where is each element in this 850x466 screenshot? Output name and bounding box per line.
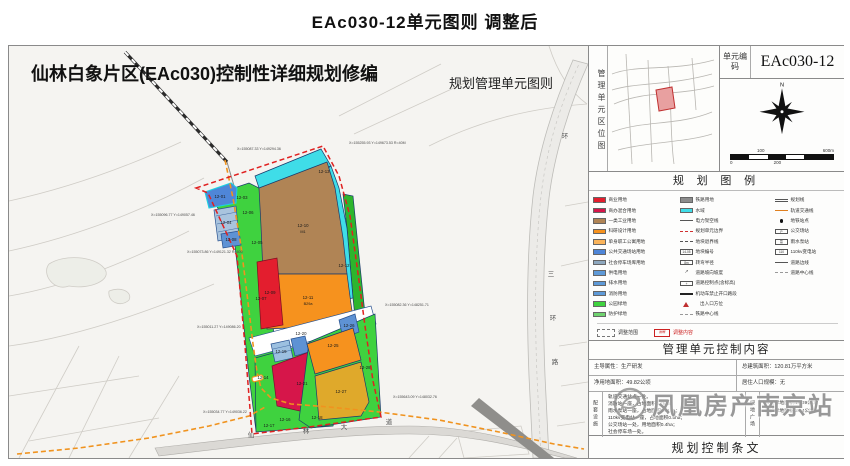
svg-text:12-01: 12-01 xyxy=(215,194,227,199)
svg-text:M1: M1 xyxy=(300,230,305,234)
svg-text:X=155643.09 Y=148032.76: X=155643.09 Y=148032.76 xyxy=(393,395,437,399)
svg-text:12-09: 12-09 xyxy=(265,290,277,295)
legend-column-landuse: 商业用地 商办混合用地 一类工业用地 科研设计用地 单身职工公寓用地 公共交通场… xyxy=(593,195,677,320)
svg-text:12-17: 12-17 xyxy=(264,423,276,428)
legend-item: 道路中心线 xyxy=(775,268,841,278)
adjust-scope-icon xyxy=(597,329,615,337)
legend-item: 商业用地 xyxy=(593,195,677,205)
swatch-commercial xyxy=(593,197,606,203)
parcel-number-icon: 14-05 xyxy=(680,249,693,255)
svg-text:12-12: 12-12 xyxy=(339,263,351,268)
scale-label-0: 0 xyxy=(730,160,733,165)
swatch-mixed xyxy=(593,208,606,214)
scale-label-200: 200 xyxy=(774,160,782,165)
legend-item: 社会停车场库用地 xyxy=(593,257,677,267)
svg-text:12-25: 12-25 xyxy=(328,343,340,348)
watermark-text: 凤凰房产南京站 xyxy=(652,386,834,421)
page-title: EAc030-12单元图则 调整后 xyxy=(0,8,850,33)
swatch-drainage xyxy=(593,281,606,287)
swatch-industrial xyxy=(593,218,606,224)
legend-item: ↗道路坡向坡度 xyxy=(680,268,772,278)
legend-item: 单身职工公寓用地 xyxy=(593,237,677,247)
svg-text:林: 林 xyxy=(303,426,310,435)
bus-depot-icon: P xyxy=(775,229,788,235)
legend-section: 规 划 图 例 商业用地 商办混合用地 一类工业用地 科研设计用地 单身职工公寓… xyxy=(589,172,844,341)
legend-item: 排水用地 xyxy=(593,278,677,288)
swatch-railway xyxy=(680,197,693,203)
legend-item: 消防用地 xyxy=(593,289,677,299)
compass-area: N 100 600m xyxy=(720,79,844,171)
setback-line-icon xyxy=(680,241,693,242)
legend-item: 规划线 xyxy=(775,195,841,205)
slope-arrow-icon: ↗ xyxy=(680,270,693,276)
legend-item: 防护绿地 xyxy=(593,309,677,319)
svg-text:X=155087.33 Y=149294.36: X=155087.33 Y=149294.36 xyxy=(237,147,281,151)
svg-text:12-05: 12-05 xyxy=(252,240,264,245)
no-access-segment-icon xyxy=(680,293,693,295)
svg-text:12-08: 12-08 xyxy=(226,237,238,242)
svg-text:12-03: 12-03 xyxy=(237,195,249,200)
legend-item: 泵雨水泵站 xyxy=(775,237,841,247)
svg-text:12-13: 12-13 xyxy=(319,169,331,174)
scale-bar: 100 600m 0 200 xyxy=(730,148,834,168)
svg-text:路: 路 xyxy=(552,357,559,366)
svg-text:12-18: 12-18 xyxy=(312,415,324,420)
panel-top-row: 管理单元区位图 xyxy=(589,46,844,172)
location-map-label: 管理单元区位图 xyxy=(589,46,608,171)
swatch-buffer-green xyxy=(593,312,606,318)
svg-text:X=155096.77 Y=149057.46: X=155096.77 Y=149057.46 xyxy=(151,213,195,217)
svg-text:12-19: 12-19 xyxy=(276,349,288,354)
minimap-highlight-parcel xyxy=(656,87,675,111)
unit-code-row: 单元编码 EAc030-12 xyxy=(720,46,844,79)
watermark: 凤凰房产南京站 xyxy=(613,386,834,421)
svg-text:B29a: B29a xyxy=(304,302,314,306)
dominant-attribute: 主导属性：生产研发 xyxy=(589,360,737,375)
rail-centerline-icon xyxy=(680,314,693,315)
swatch-transit xyxy=(593,249,606,255)
legend-item: 科研设计用地 xyxy=(593,226,677,236)
legend-item: 公共交通场站用地 xyxy=(593,247,677,257)
location-minimap xyxy=(608,46,719,171)
facilities-label: 配套设施 xyxy=(589,392,603,437)
plan-map: 12-01 12-03 12-04 12-05 12-06 12-07 12-0… xyxy=(9,46,588,458)
svg-text:12-20: 12-20 xyxy=(296,331,308,336)
legend-adjust-row: 调整范围 图框调整内容 xyxy=(597,323,838,340)
entrance-direction-icon xyxy=(683,302,689,307)
legend-item: P公交场站 xyxy=(775,226,841,236)
legend-item: 供电用地 xyxy=(593,268,677,278)
sheet-title: 仙林白象片区(EAc030)控制性详细规划修编 xyxy=(31,60,378,86)
scale-label-100: 100 xyxy=(757,148,765,153)
legend-title: 规 划 图 例 xyxy=(589,172,844,191)
legend-item: 铁路用地 xyxy=(680,195,772,205)
swatch-parking xyxy=(593,260,606,266)
svg-text:12-16: 12-16 xyxy=(280,417,292,422)
pump-station-icon: 泵 xyxy=(775,239,788,245)
swatch-fire xyxy=(593,291,606,297)
swatch-dorm xyxy=(593,239,606,245)
svg-text:12-28: 12-28 xyxy=(360,365,372,370)
legend-item: 地块退界线 xyxy=(680,237,772,247)
svg-text:仙: 仙 xyxy=(248,430,255,439)
unit-code-label: 单元编码 xyxy=(720,46,751,78)
legend-item: +道路控制点(含标高) xyxy=(680,278,772,288)
svg-text:X=155082.36 Y=148251.71: X=155082.36 Y=148251.71 xyxy=(385,303,429,307)
legend-item: 110110kv变电站 xyxy=(775,247,841,257)
scale-label-600m: 600m xyxy=(823,148,834,153)
legend-item: 商办混合用地 xyxy=(593,205,677,215)
svg-text:环: 环 xyxy=(562,132,569,140)
unit-location-section: 管理单元区位图 xyxy=(589,46,720,171)
svg-text:12-14: 12-14 xyxy=(258,375,270,380)
planning-terms-title: 规划控制条文 xyxy=(589,436,844,458)
legend-item: 公园绿地 xyxy=(593,299,677,309)
svg-text:X=155011.27 Y=149086.20: X=155011.27 Y=149086.20 xyxy=(197,325,241,329)
legend-item: 铁路中心线 xyxy=(680,309,772,319)
svg-text:12-07: 12-07 xyxy=(256,296,268,301)
svg-text:大: 大 xyxy=(341,422,348,431)
svg-text:12-11: 12-11 xyxy=(303,295,314,300)
legend-item: 电力架空线 xyxy=(680,216,772,226)
svg-text:X=155255.93 Y=149673.53 R=40M: X=155255.93 Y=149673.53 R=40M xyxy=(349,141,406,145)
swatch-power xyxy=(593,270,606,276)
svg-text:道: 道 xyxy=(386,417,393,426)
legend-item: 地铁站点 xyxy=(775,216,841,226)
road-edge-icon xyxy=(775,262,788,263)
road-centerline-icon xyxy=(775,272,788,273)
legend-item: 一类工业用地 xyxy=(593,216,677,226)
legend-item: 道路边线 xyxy=(775,257,841,267)
phoenix-logo-icon xyxy=(613,387,647,421)
swatch-water xyxy=(680,208,693,214)
svg-text:12-10: 12-10 xyxy=(298,223,310,228)
compass-rose-icon: N xyxy=(749,80,815,138)
total-floor-area: 总建筑面积：120.81万平方米 xyxy=(737,360,844,375)
metro-station-legend-icon xyxy=(775,218,788,224)
svg-text:环: 环 xyxy=(550,314,557,322)
adjust-content-icon: 图框 xyxy=(654,329,670,337)
svg-text:三: 三 xyxy=(548,270,555,278)
legend-item: 14-05地块编号 xyxy=(680,247,772,257)
legend-column-lines: 铁路用地 水域 电力架空线 规划单元边界 地块退界线 14-05地块编号 8m转… xyxy=(680,195,772,320)
metro-line-icon xyxy=(775,210,788,211)
legend-column-symbols: 规划线 轨道交通线 地铁站点 P公交场站 泵雨水泵站 110110kv变电站 道… xyxy=(775,195,841,320)
swatch-park-green xyxy=(593,301,606,307)
svg-text:12-04: 12-04 xyxy=(221,220,233,225)
svg-text:12-26: 12-26 xyxy=(344,323,356,328)
legend-item: 机动车禁止开口路段 xyxy=(680,289,772,299)
legend-item: 水域 xyxy=(680,205,772,215)
control-content-title: 管理单元控制内容 xyxy=(589,341,844,360)
powerline-icon xyxy=(680,220,693,221)
unit-boundary-icon xyxy=(680,231,693,232)
legend-item: 出入口方位 xyxy=(680,299,772,309)
svg-text:12-21: 12-21 xyxy=(297,381,309,386)
svg-text:X=155034.77 Y=149036.22: X=155034.77 Y=149036.22 xyxy=(203,410,247,414)
svg-text:12-27: 12-27 xyxy=(336,389,348,394)
unit-code-value: EAc030-12 xyxy=(751,46,844,78)
substation-icon: 110 xyxy=(775,249,788,255)
legend-item: 轨道交通线 xyxy=(775,205,841,215)
svg-text:12-06: 12-06 xyxy=(243,210,255,215)
legend-item: 规划单元边界 xyxy=(680,226,772,236)
legend-item: 8m转弯半径 xyxy=(680,257,772,267)
turn-radius-icon: 8m xyxy=(680,260,693,266)
svg-text:N: N xyxy=(780,83,784,89)
swatch-rnd xyxy=(593,229,606,235)
plan-line-icon xyxy=(775,199,788,202)
sheet-subtitle: 规划管理单元图则 xyxy=(449,73,553,92)
road-control-point-icon: + xyxy=(680,281,693,287)
svg-text:X=155073.86 Y=149121.32 R=600: X=155073.86 Y=149121.32 R=600 xyxy=(187,250,243,254)
plan-map-svg: 12-01 12-03 12-04 12-05 12-06 12-07 12-0… xyxy=(9,46,588,458)
